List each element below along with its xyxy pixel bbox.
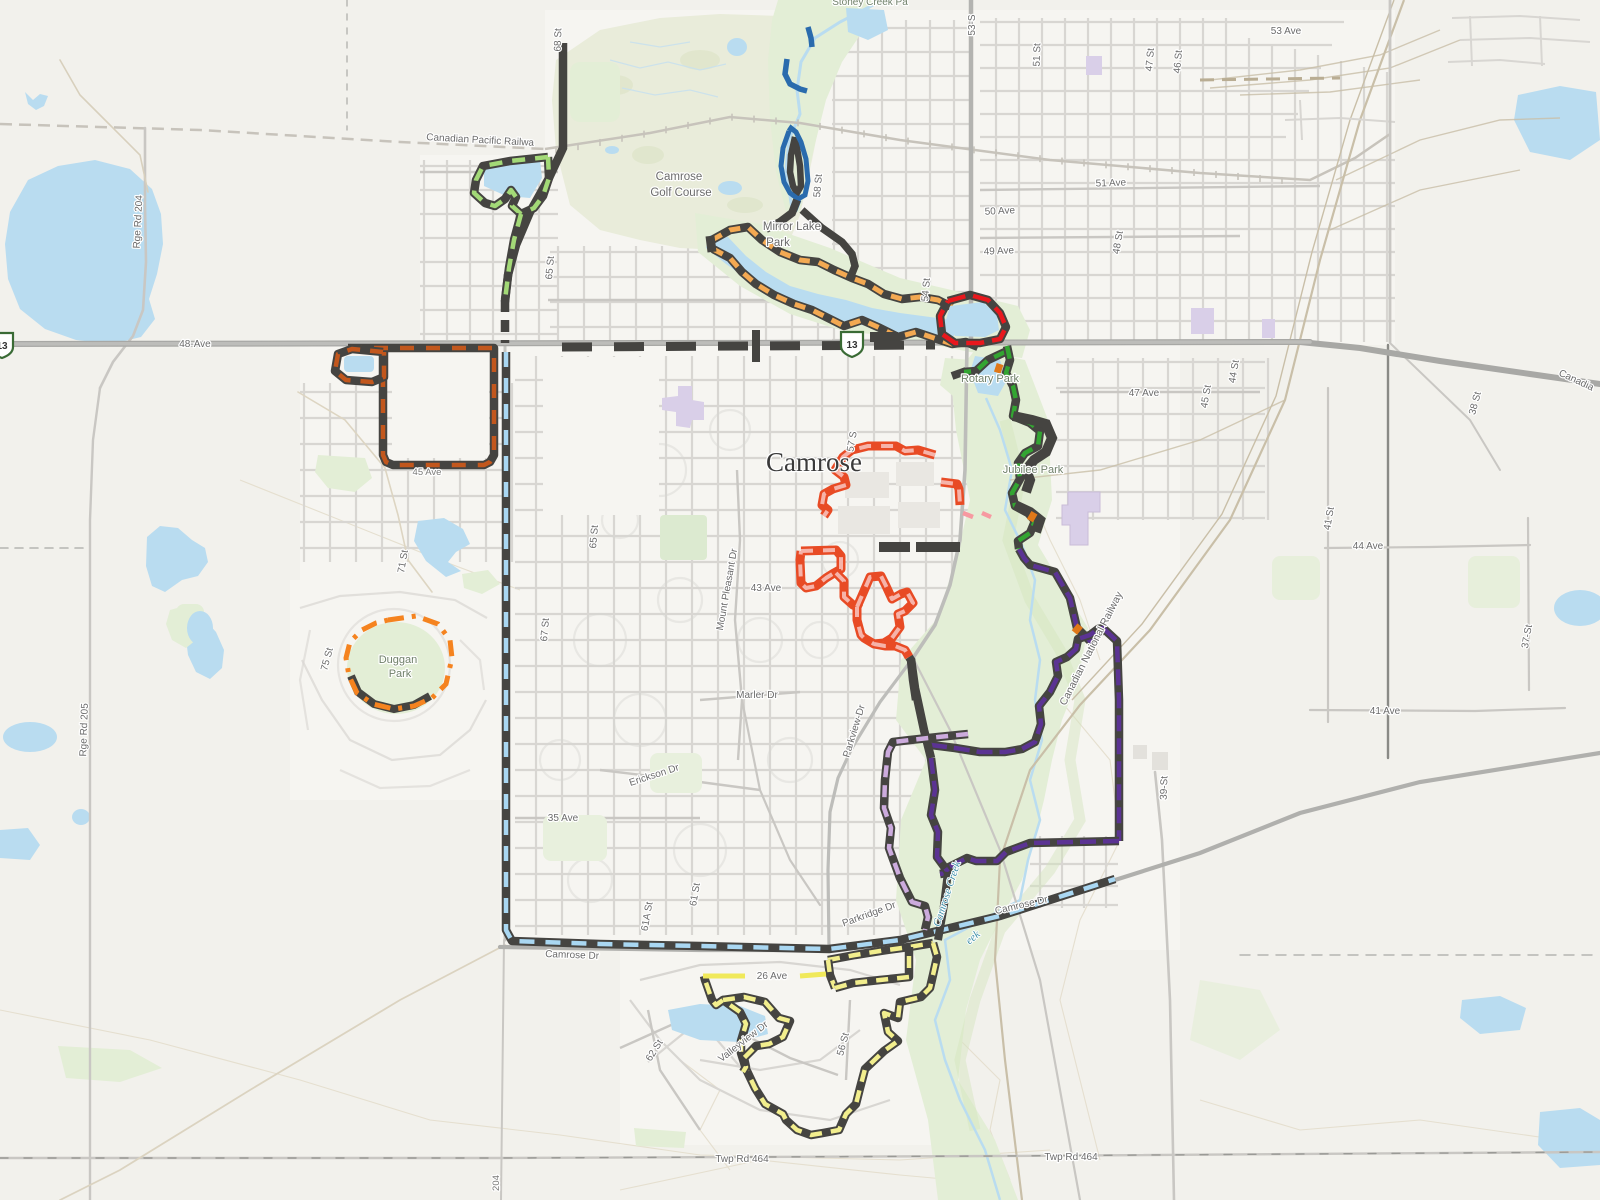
svg-text:26 Ave: 26 Ave	[757, 971, 788, 982]
svg-text:13: 13	[0, 341, 8, 352]
svg-text:46 St: 46 St	[1172, 49, 1185, 73]
svg-text:65 St: 65 St	[588, 524, 601, 548]
svg-text:51 St: 51 St	[1032, 43, 1044, 67]
svg-text:Jubilee Park: Jubilee Park	[1003, 464, 1064, 476]
svg-text:50 Ave: 50 Ave	[984, 205, 1015, 218]
svg-text:Golf Course: Golf Course	[650, 187, 711, 199]
svg-text:48-Ave: 48-Ave	[179, 339, 211, 350]
svg-text:Twp Rd 464: Twp Rd 464	[715, 1154, 769, 1165]
svg-text:35 Ave: 35 Ave	[548, 813, 579, 824]
svg-text:53-S: 53-S	[967, 14, 978, 35]
svg-text:67 St: 67 St	[539, 617, 552, 641]
svg-text:Park: Park	[389, 668, 412, 680]
svg-text:44 Ave: 44 Ave	[1353, 541, 1384, 552]
svg-text:Twp Rd 464: Twp Rd 464	[1044, 1152, 1098, 1163]
svg-text:45 Ave: 45 Ave	[413, 467, 442, 478]
svg-text:47 Ave: 47 Ave	[1129, 388, 1160, 399]
svg-text:13: 13	[846, 340, 858, 351]
svg-text:39-St: 39-St	[1159, 776, 1171, 800]
svg-text:51 Ave: 51 Ave	[1096, 177, 1127, 189]
svg-text:Marler Dr: Marler Dr	[736, 690, 778, 701]
svg-text:204: 204	[491, 1175, 502, 1191]
svg-text:58 St: 58 St	[812, 173, 825, 197]
svg-text:47 St: 47 St	[1144, 47, 1157, 71]
svg-text:Park: Park	[766, 237, 790, 249]
svg-text:49 Ave: 49 Ave	[983, 245, 1014, 258]
svg-text:65 St: 65 St	[544, 255, 557, 279]
svg-text:Camrose: Camrose	[656, 171, 703, 183]
svg-text:Camrose Dr: Camrose Dr	[545, 949, 600, 962]
svg-text:41 Ave: 41 Ave	[1370, 706, 1401, 717]
svg-text:43 Ave: 43 Ave	[751, 583, 782, 594]
svg-text:53 Ave: 53 Ave	[1271, 26, 1302, 37]
svg-text:Rge Rd 205: Rge Rd 205	[78, 703, 91, 757]
svg-text:54 St: 54 St	[920, 277, 933, 301]
svg-text:Rotary Park: Rotary Park	[961, 373, 1020, 385]
svg-text:Stoney Creek Pa: Stoney Creek Pa	[832, 0, 908, 8]
svg-text:Mirror Lake: Mirror Lake	[763, 221, 821, 233]
svg-text:68 St: 68 St	[553, 28, 565, 52]
svg-text:Duggan: Duggan	[379, 654, 418, 666]
